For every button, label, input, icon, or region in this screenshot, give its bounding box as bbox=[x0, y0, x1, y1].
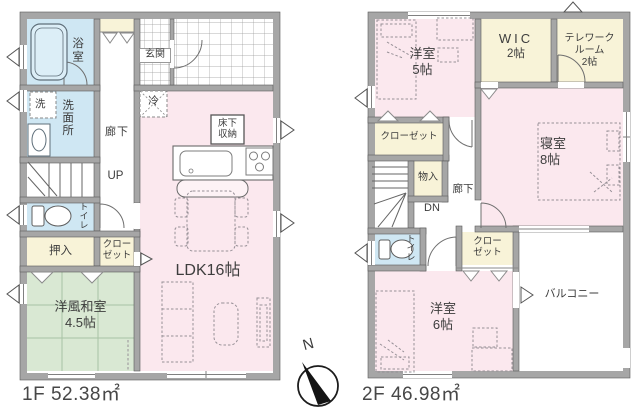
label-bedroom5-1: 洋室 bbox=[395, 47, 450, 61]
label-refrigerator: 冷 bbox=[140, 96, 167, 107]
floorplan-drawing bbox=[0, 0, 640, 416]
bathtub-icon bbox=[31, 24, 67, 80]
sink-icon bbox=[180, 151, 232, 176]
label-washer: 洗 bbox=[35, 99, 46, 110]
label-closet-2f-lower-2: ゼット bbox=[462, 248, 513, 258]
label-master-1: 寝室 bbox=[540, 137, 566, 151]
label-telework-2: ルーム bbox=[556, 46, 623, 57]
label-washroom: 洗面所 bbox=[61, 99, 73, 137]
label-bedroom5-2: 5帖 bbox=[395, 63, 450, 77]
floorplan-canvas: 浴室 洗 洗面所 廊下 玄関 UP 冷 床下 収納 トイレ 押入 クロー ゼット… bbox=[0, 0, 640, 416]
label-ldk: LDK16帖 bbox=[163, 263, 253, 280]
label-japanese-room-1: 洋風和室 bbox=[27, 300, 134, 314]
label-stairs-up: UP bbox=[99, 170, 132, 182]
label-balcony: バルコニー bbox=[532, 289, 612, 301]
label-underfloor-2: 収納 bbox=[211, 130, 244, 140]
label-toilet-2f: トイレ bbox=[405, 234, 414, 261]
label-entrance: 玄関 bbox=[139, 48, 171, 63]
label-floor2-area: 2F 46.98㎡ bbox=[362, 385, 461, 405]
toilet-icon-1f bbox=[32, 206, 71, 226]
label-closet-2f-upper: クローゼット bbox=[376, 132, 442, 142]
label-toilet-1f: トイレ bbox=[78, 202, 87, 229]
label-underfloor-1: 床下 bbox=[211, 119, 244, 129]
shoe-cabinet bbox=[100, 19, 134, 32]
label-master-2: 8帖 bbox=[540, 153, 560, 167]
label-japanese-room-2: 4.5帖 bbox=[27, 316, 134, 330]
label-wic-1: WIC bbox=[481, 32, 551, 46]
label-bedroom6-2: 6帖 bbox=[415, 318, 471, 332]
label-bedroom6-1: 洋室 bbox=[415, 302, 471, 316]
vanity-icon bbox=[28, 124, 50, 156]
porch-tiles bbox=[174, 19, 273, 85]
label-storage-2f: 物入 bbox=[414, 173, 442, 184]
compass bbox=[298, 362, 338, 406]
label-oshiire: 押入 bbox=[27, 245, 94, 257]
label-floor1-area: 1F 52.38㎡ bbox=[22, 385, 121, 405]
label-hallway-2f: 廊下 bbox=[447, 184, 479, 195]
label-closet-1f-2: ゼット bbox=[100, 251, 134, 261]
label-closet-2f-lower-1: クロー bbox=[462, 237, 513, 247]
label-closet-1f-1: クロー bbox=[100, 240, 134, 250]
label-telework-3: 2帖 bbox=[556, 58, 623, 69]
label-stairs-down: DN bbox=[418, 203, 446, 215]
room-ldk bbox=[140, 91, 273, 371]
label-hallway-1f: 廊下 bbox=[100, 127, 134, 139]
label-telework-1: テレワーク bbox=[556, 34, 623, 45]
label-bathroom: 浴室 bbox=[71, 37, 83, 64]
label-wic-2: 2帖 bbox=[481, 48, 551, 60]
